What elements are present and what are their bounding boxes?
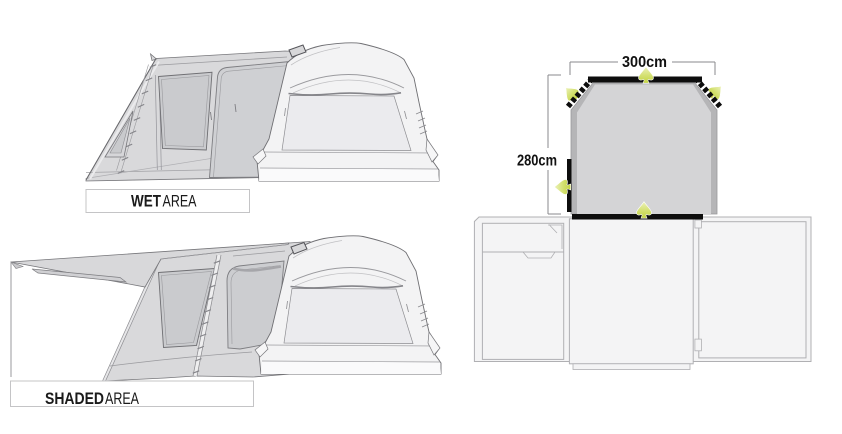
svg-text:WET: WET [131,193,161,211]
svg-text:SHADED: SHADED [45,389,104,408]
svg-text:300cm: 300cm [622,54,667,71]
svg-text:AREA: AREA [163,193,197,211]
svg-text:AREA: AREA [105,389,139,408]
svg-text:280cm: 280cm [517,153,557,170]
